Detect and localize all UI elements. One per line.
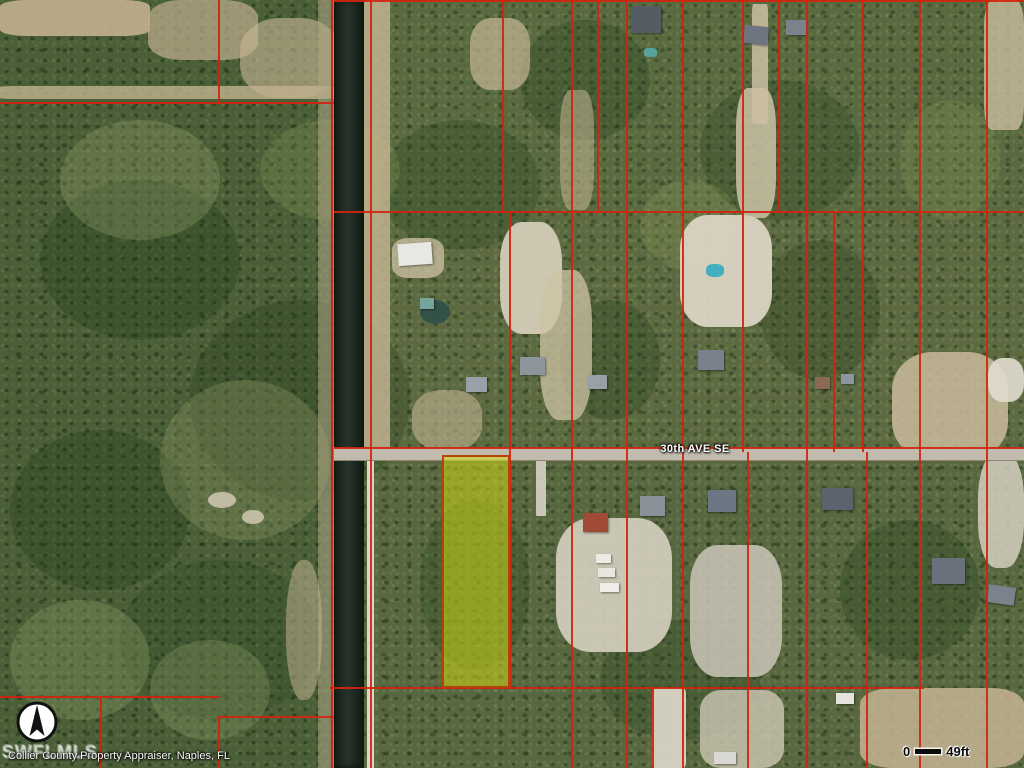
- building-roof: [596, 554, 611, 563]
- terrain-patch: [840, 520, 980, 660]
- building-roof: [600, 583, 619, 592]
- parcel-boundary-line: [986, 0, 988, 768]
- parcel-boundary-line: [502, 0, 504, 213]
- terrain-patch: [208, 492, 236, 508]
- building-roof: [631, 6, 661, 33]
- terrain-patch: [536, 460, 546, 516]
- terrain-patch: [364, 0, 390, 452]
- terrain-patch: [644, 48, 657, 57]
- terrain-patch: [700, 690, 784, 768]
- terrain-patch: [560, 90, 594, 210]
- street-name-label: 30th AVE SE: [628, 443, 762, 455]
- building-roof: [698, 350, 724, 370]
- parcel-boundary-line: [571, 0, 573, 768]
- building-roof: [822, 488, 853, 510]
- building-roof: [397, 242, 432, 266]
- parcel-boundary-line: [747, 452, 749, 768]
- building-roof: [714, 752, 736, 764]
- terrain-patch: [470, 18, 530, 90]
- parcel-boundary-line: [370, 0, 372, 768]
- parcel-boundary-line: [682, 0, 684, 768]
- terrain-patch: [752, 4, 768, 124]
- parcel-boundary-line: [0, 696, 220, 698]
- building-roof: [786, 20, 806, 35]
- terrain-patch: [150, 640, 270, 740]
- building-roof: [932, 558, 965, 584]
- scale-end-label: 49ft: [946, 744, 969, 759]
- selected-parcel-highlight[interactable]: [442, 455, 510, 688]
- terrain-patch: [988, 358, 1024, 402]
- terrain-patch: [0, 86, 334, 99]
- building-roof: [708, 490, 736, 512]
- terrain-patch: [652, 688, 686, 768]
- parcel-boundary-line: [218, 0, 220, 104]
- terrain-patch: [286, 560, 322, 700]
- terrain-patch: [978, 452, 1024, 568]
- canal-waterway: [334, 0, 364, 768]
- building-roof: [987, 584, 1016, 606]
- building-roof: [815, 377, 830, 389]
- parcel-boundary-line: [0, 102, 334, 104]
- scale-start-label: 0: [903, 744, 910, 759]
- parcel-boundary-line: [597, 0, 599, 213]
- parcel-boundary-line: [742, 0, 744, 452]
- building-roof: [466, 377, 487, 392]
- parcel-boundary-line: [806, 0, 808, 768]
- parcel-boundary-line: [778, 0, 780, 213]
- parcel-boundary-line: [626, 0, 628, 768]
- terrain-patch: [0, 0, 150, 36]
- terrain-patch: [984, 0, 1024, 130]
- parcel-boundary-line: [218, 716, 334, 718]
- terrain-patch: [242, 510, 264, 524]
- parcel-boundary-line: [866, 452, 868, 768]
- building-roof: [640, 496, 665, 516]
- building-roof: [836, 693, 854, 704]
- aerial-map-canvas[interactable]: 30th AVE SE 0 49ft SWFLMLS Collier Count…: [0, 0, 1024, 768]
- building-roof: [841, 374, 854, 384]
- parcel-boundary-line: [833, 211, 835, 452]
- building-roof: [583, 513, 608, 532]
- map-scale-bar: 0 49ft: [903, 744, 969, 759]
- terrain-patch: [60, 120, 220, 240]
- building-roof: [420, 298, 434, 309]
- terrain-patch: [690, 545, 782, 677]
- building-roof: [743, 25, 769, 45]
- parcel-boundary-line: [331, 0, 333, 768]
- scale-bar-segment: [915, 749, 941, 754]
- terrain-patch: [706, 264, 724, 277]
- terrain-patch: [412, 390, 482, 450]
- building-roof: [520, 357, 545, 375]
- parcel-boundary-line: [652, 687, 654, 768]
- parcel-boundary-line: [919, 0, 921, 768]
- terrain-patch: [540, 270, 592, 420]
- building-roof: [598, 568, 615, 577]
- parcel-boundary-line: [862, 0, 864, 452]
- building-roof: [588, 375, 607, 389]
- terrain-patch: [680, 215, 772, 327]
- map-attribution: Collier County Property Appraiser, Naple…: [8, 750, 230, 762]
